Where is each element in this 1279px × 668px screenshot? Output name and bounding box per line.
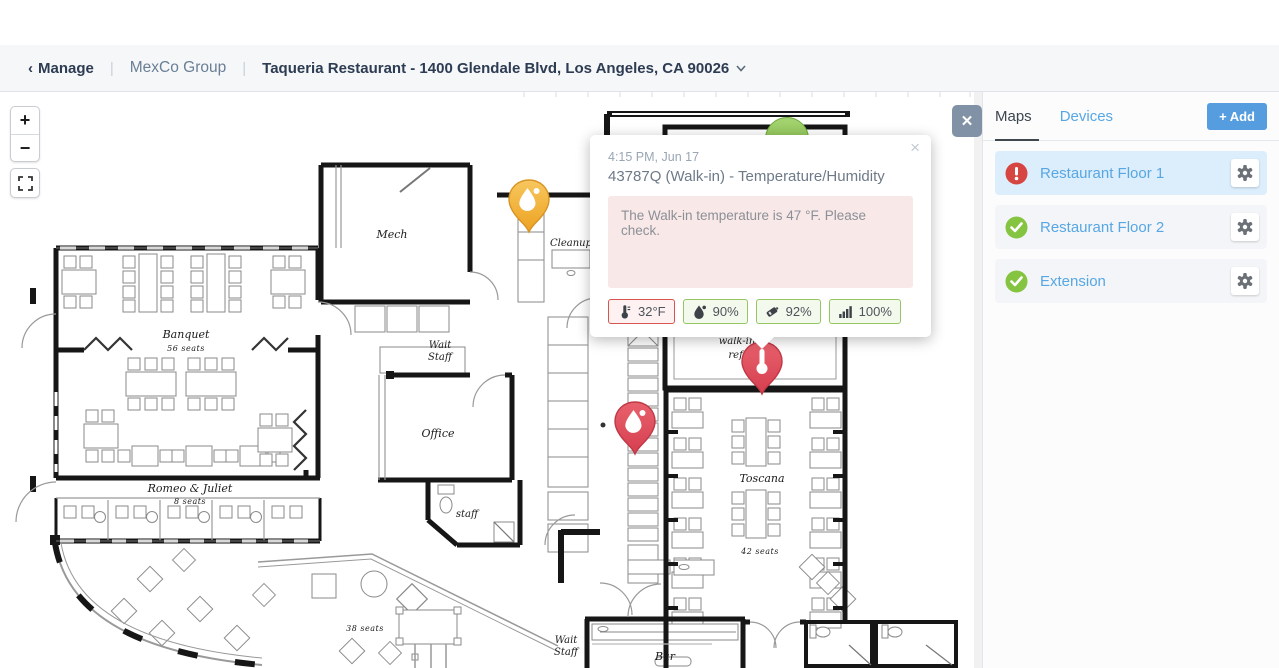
alert-icon [1005,162,1028,185]
signal-badge: 100% [829,299,901,324]
device-alert-popup: × 4:15 PM, Jun 17 43787Q (Walk-in) - Tem… [590,135,931,337]
battery-icon [765,304,780,319]
battery-badge: 92% [756,299,821,324]
temperature-badge: 32°F [608,299,675,324]
breadcrumb-divider: | [110,60,114,77]
chevron-down-icon [736,65,746,72]
room-label-banquet: Banquet [162,328,210,341]
popup-alert-message: The Walk-in temperature is 47 °F. Please… [608,196,913,288]
signal-bars-icon [838,304,853,319]
side-panel: Maps Devices + Add Restaurant Floor 1 [982,92,1279,668]
map-list-item-restaurant-floor-1[interactable]: Restaurant Floor 1 [995,151,1267,195]
add-button[interactable]: + Add [1207,103,1267,130]
room-seats-toscana: 42 seats [740,547,779,556]
zoom-controls: + − [10,106,40,162]
fullscreen-button[interactable] [10,168,40,198]
map-list-item-extension[interactable]: Extension [995,259,1267,303]
room-label-waitstaff-1b: Staff [428,352,454,363]
popup-device-title: 43787Q (Walk-in) - Temperature/Humidity [608,168,913,185]
map-close-button[interactable]: ✕ [952,105,982,137]
room-label-waitstaff-1: Wait [429,340,453,351]
humidity-value: 90% [713,304,739,319]
settings-button[interactable] [1231,267,1259,295]
temperature-value: 32°F [638,304,666,319]
group-name[interactable]: MexCo Group [130,59,226,77]
thermometer-icon [617,304,632,319]
manage-back-link[interactable]: ‹ Manage [28,60,94,77]
room-seats-romeo-juliet: 8 seats [174,497,206,506]
room-label-toscana: Toscana [739,472,784,485]
room-label-waitstaff-2: Wait [555,635,579,646]
signal-value: 100% [859,304,892,319]
zoom-in-button[interactable]: + [11,107,39,134]
map-list-item-label: Extension [1040,273,1106,290]
map-edge-strip [974,92,982,668]
water-drop-icon [692,304,707,319]
location-selector[interactable]: Taqueria Restaurant - 1400 Glendale Blvd… [262,60,746,77]
map-pin-water-warning[interactable] [507,178,551,234]
close-icon[interactable]: × [910,139,920,156]
room-label-mech: Mech [375,228,407,241]
active-tab-underline [995,139,1039,142]
chevron-left-icon: ‹ [28,60,33,77]
room-seats-banquet: 56 seats [167,344,205,353]
fullscreen-icon [18,176,33,191]
popup-timestamp: 4:15 PM, Jun 17 [608,150,913,164]
room-label-office: Office [422,427,455,440]
gear-icon [1237,219,1253,235]
map-pin-water-alert[interactable] [613,400,657,456]
settings-button[interactable] [1231,213,1259,241]
manage-label: Manage [38,60,94,77]
room-seats-lounge: 38 seats [346,624,384,633]
metric-badges: 32°F 90% 92% 100% [608,299,913,324]
gear-icon [1237,273,1253,289]
room-label-waitstaff-2b: Staff [554,647,580,658]
tab-maps[interactable]: Maps [995,108,1032,125]
tab-maps-label: Maps [995,108,1032,125]
plus-icon: + [1219,109,1227,124]
room-label-staff: staff [456,509,480,520]
panel-header: Maps Devices + Add [983,92,1279,141]
map-list-item-label: Restaurant Floor 1 [1040,165,1164,182]
gear-icon [1237,165,1253,181]
breadcrumb-divider: | [242,60,246,77]
floorplan-map[interactable]: Mech Cleanup Banquet 56 seats Wait Staff… [0,92,982,668]
room-label-bar: Bar [654,650,676,663]
battery-value: 92% [786,304,812,319]
humidity-badge: 90% [683,299,748,324]
breadcrumb: ‹ Manage | MexCo Group | Taqueria Restau… [0,45,1279,92]
app-window: ‹ Manage | MexCo Group | Taqueria Restau… [0,0,1279,668]
room-label-cleanup: Cleanup [550,238,593,249]
check-icon [1005,270,1028,293]
location-label: Taqueria Restaurant - 1400 Glendale Blvd… [262,60,729,77]
add-button-label: Add [1230,109,1255,124]
tab-devices[interactable]: Devices [1060,108,1113,125]
settings-button[interactable] [1231,159,1259,187]
room-label-romeo-juliet: Romeo & Juliet [147,482,233,495]
check-icon [1005,216,1028,239]
map-list-item-restaurant-floor-2[interactable]: Restaurant Floor 2 [995,205,1267,249]
top-nav-strip [0,0,1279,46]
zoom-out-button[interactable]: − [11,134,39,161]
map-list-item-label: Restaurant Floor 2 [1040,219,1164,236]
map-list: Restaurant Floor 1 [983,141,1279,313]
